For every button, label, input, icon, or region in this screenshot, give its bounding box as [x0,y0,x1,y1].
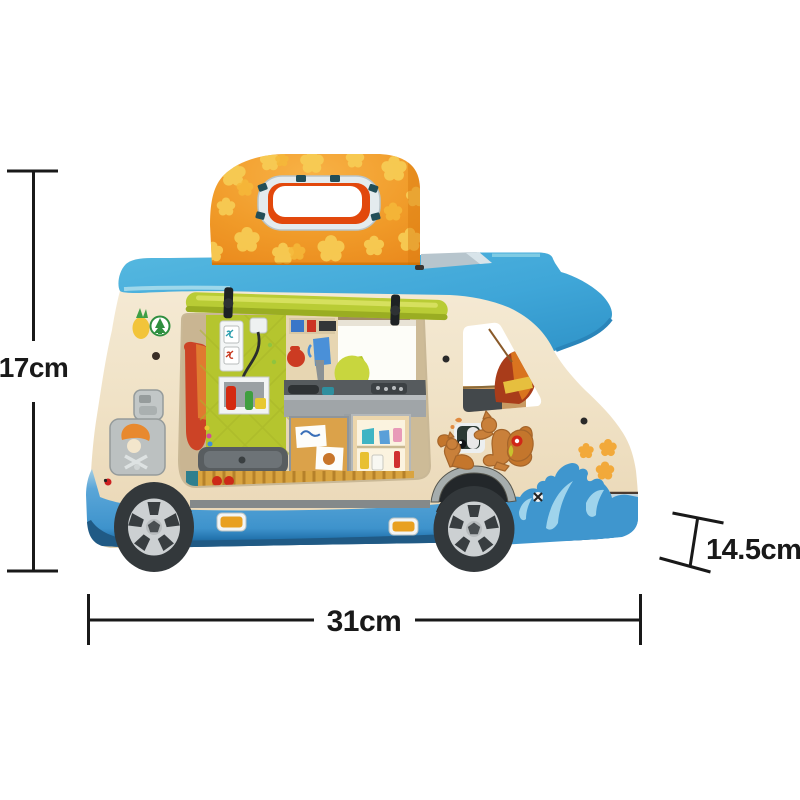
svg-text:17cm: 17cm [0,352,68,383]
svg-text:14.5cm: 14.5cm [706,534,800,566]
svg-text:31cm: 31cm [327,605,402,638]
